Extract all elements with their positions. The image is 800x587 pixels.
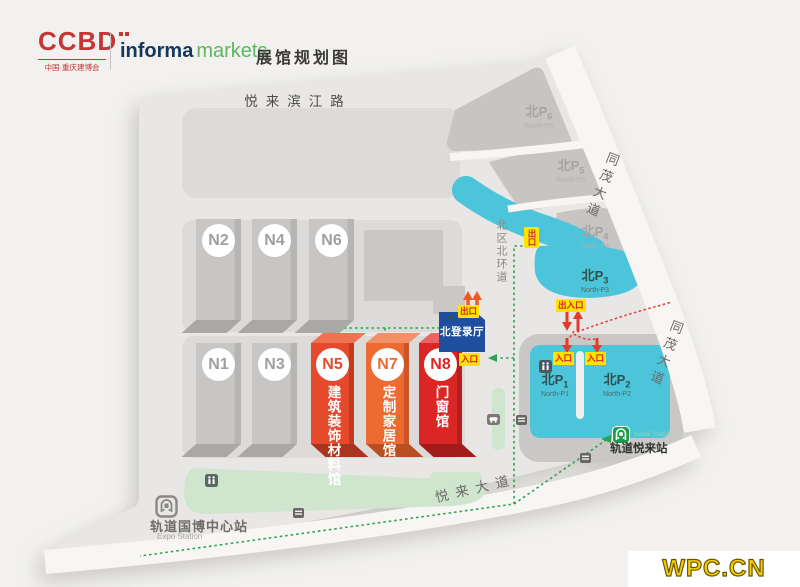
header-divider xyxy=(110,32,111,70)
hall-n8-badge: N8 xyxy=(424,348,457,381)
hall-n8-name-col1: 门窗馆 xyxy=(431,385,451,429)
restroom-icon-green-strip xyxy=(205,474,218,492)
hall-n4-badge: N4 xyxy=(258,224,291,257)
hall-n7-badge: N7 xyxy=(371,348,404,381)
hall-n5-name-col2: 材料馆 xyxy=(323,443,343,487)
hall-n8-name: 门窗馆 xyxy=(419,385,462,429)
hall-n8[interactable]: N8 门窗馆 xyxy=(419,343,462,444)
parking-label-p4: 北P4 North-P4 xyxy=(572,224,618,250)
hall-n5[interactable]: N5 建筑装饰 材料馆 xyxy=(311,343,354,444)
gate-entry-login-hall: 入口 xyxy=(459,353,480,366)
hall-n1-badge: N1 xyxy=(202,348,235,381)
gate-entry-p1: 入口 xyxy=(553,352,574,365)
bus-stop-icon-1 xyxy=(516,412,527,430)
hall-n6-badge: N6 xyxy=(315,224,348,257)
ccbd-logo-subtitle: 中国·重庆建博会 xyxy=(38,59,106,73)
car-icon xyxy=(487,412,500,430)
bus-stop-icon-2 xyxy=(580,450,591,468)
restroom-icon-p1 xyxy=(539,360,552,378)
north-login-hall[interactable]: 北登录厅 xyxy=(439,312,485,352)
hall-n5-badge: N5 xyxy=(316,348,349,381)
expo-station-label-en: Expo Station xyxy=(157,532,202,541)
hall-n4[interactable]: N4 xyxy=(252,219,297,320)
hall-n2[interactable]: N2 xyxy=(196,219,241,320)
yuelai-station-label: 轨道悦来站 xyxy=(610,440,668,456)
hall-n1[interactable]: N1 xyxy=(196,343,241,444)
parking-label-p6: 北P6 North-P6 xyxy=(516,104,562,130)
parking-label-p2: 北P2 North-P2 xyxy=(594,372,640,398)
hall-n2-badge: N2 xyxy=(202,224,235,257)
venue-map-page: CCBD 中国·重庆建博会 informamarkets 展馆规划图 悦来滨江路… xyxy=(0,0,800,587)
hall-n6[interactable]: N6 xyxy=(309,219,354,320)
yuelai-station-label-en: Yuelai Station xyxy=(633,431,673,438)
hall-n5-name-col1: 建筑装饰 xyxy=(323,385,343,443)
hall-n3-badge: N3 xyxy=(258,348,291,381)
hall-n5-name: 建筑装饰 材料馆 xyxy=(311,385,354,487)
hall-n7-name-col2: 家居馆 xyxy=(378,414,398,458)
road-label-riverside: 悦来滨江路 xyxy=(218,90,378,110)
informa-markets-logo: informamarkets xyxy=(120,40,267,63)
road-label-north-ring: 北区北环道 xyxy=(493,219,509,284)
watermark: WPC.CN xyxy=(628,551,800,587)
hall-n7[interactable]: N7 定制 家居馆 xyxy=(366,343,409,444)
hall-n7-name-col1: 定制 xyxy=(378,385,398,414)
page-title: 展馆规划图 xyxy=(256,44,351,68)
gate-exit-login-hall: 出口 xyxy=(458,305,479,318)
hall-n7-name: 定制 家居馆 xyxy=(366,385,409,458)
parking-label-p5: 北P5 North-P5 xyxy=(548,158,594,184)
gate-both-p3: 出入口 xyxy=(556,299,586,312)
gate-entry-p2: 入口 xyxy=(585,352,606,365)
map-base xyxy=(0,0,800,587)
hall-n3[interactable]: N3 xyxy=(252,343,297,444)
informa-wordmark: informa xyxy=(120,40,193,62)
gate-exit-north-ring: 出口 xyxy=(524,227,539,248)
parking-label-p3: 北P3 North-P3 xyxy=(572,268,618,294)
bus-stop-icon-3 xyxy=(293,505,304,523)
